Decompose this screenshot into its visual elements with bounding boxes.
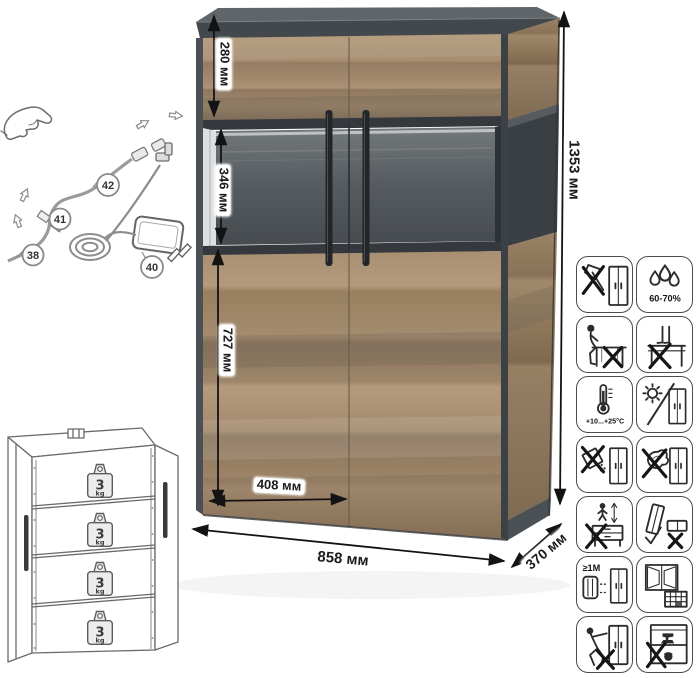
dim-glass-section: 346 мм: [216, 165, 231, 216]
product-infographic: 3 kg: [0, 0, 700, 678]
led-wiring-diagram: 42 41 38 40: [0, 95, 200, 290]
no-sitting-icon: [576, 316, 633, 373]
cabinet-side-panel: [508, 18, 560, 540]
left-door-handle: [24, 515, 29, 571]
power-adapter: [70, 143, 194, 264]
glass-display-section: [203, 116, 508, 256]
led-driver-box: [68, 429, 84, 438]
no-overload-icon: [636, 616, 693, 673]
cabinet-upper-doors: [203, 34, 508, 124]
dim-total-height: 1353 мм: [565, 137, 582, 203]
callout-42: 42: [102, 180, 114, 192]
arrow-total-height: [560, 12, 564, 504]
no-jumping-icon: [576, 496, 633, 553]
right-door-handle: [163, 482, 168, 538]
no-abrasive-cleaners-icon: [576, 436, 633, 493]
floor-shadow: [174, 571, 570, 599]
no-standing-icon: [636, 316, 693, 373]
ventilate-room-icon: [636, 556, 693, 613]
interior-back-panel: [216, 127, 495, 245]
no-direct-sunlight-icon: [636, 376, 693, 433]
cabinet-lower-doors: [203, 251, 508, 540]
care-icons-grid: 60-70%: [576, 256, 693, 673]
temperature-label: +10...+25°C: [585, 417, 623, 425]
no-dragging-icon: [576, 616, 633, 673]
hand-icon: [4, 107, 51, 139]
open-right-door: [155, 445, 178, 650]
no-sharp-tools-icon: [576, 256, 633, 313]
no-wet-cleaning-icon: [636, 436, 693, 493]
temperature-range-icon: +10...+25°C: [576, 376, 633, 433]
humidity-icon: 60-70%: [636, 256, 693, 313]
callout-40: 40: [146, 262, 158, 274]
dim-top-section: 280 мм: [217, 39, 232, 90]
dim-bottom-section: 727 мм: [220, 325, 235, 376]
anvil-glyph: [660, 633, 673, 643]
shelf-load-diagram: [0, 420, 195, 678]
dim-door-width: 408 мм: [253, 477, 304, 495]
humidity-label: 60-70%: [649, 293, 681, 303]
callout-41: 41: [54, 214, 66, 226]
right-edge-strip: [501, 34, 508, 540]
heat-distance-icon: ≥1M: [576, 556, 633, 613]
cabinet-top-panel: [196, 7, 560, 38]
transport-upright-icon: [636, 496, 693, 553]
calendar-glyph: [665, 591, 687, 606]
callout-38: 38: [27, 250, 39, 262]
heat-distance-label: ≥1M: [582, 562, 600, 572]
